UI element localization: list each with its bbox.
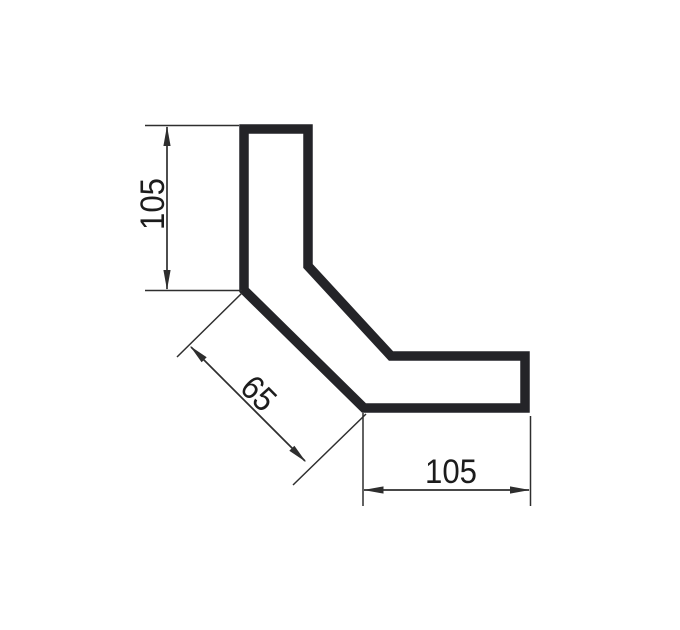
extension-line-upper bbox=[177, 293, 242, 357]
dimension-label-left: 105 bbox=[134, 178, 172, 230]
dimension-bottom-horizontal: 105 bbox=[363, 413, 531, 506]
profile-group bbox=[244, 129, 525, 408]
dimension-left-vertical: 105 bbox=[134, 126, 242, 291]
arrow-left-icon bbox=[364, 486, 384, 493]
arrow-right-icon bbox=[510, 486, 530, 493]
dimension-label-diagonal: 65 bbox=[233, 368, 284, 419]
drawing-canvas: 105 65 105 bbox=[0, 0, 680, 630]
technical-drawing-svg: 105 65 105 bbox=[0, 0, 680, 630]
profile-outline bbox=[244, 129, 525, 408]
extension-line-lower bbox=[293, 414, 366, 485]
arrow-up-icon bbox=[163, 126, 170, 146]
dimension-label-bottom: 105 bbox=[425, 453, 477, 491]
arrow-down-icon bbox=[163, 270, 170, 290]
